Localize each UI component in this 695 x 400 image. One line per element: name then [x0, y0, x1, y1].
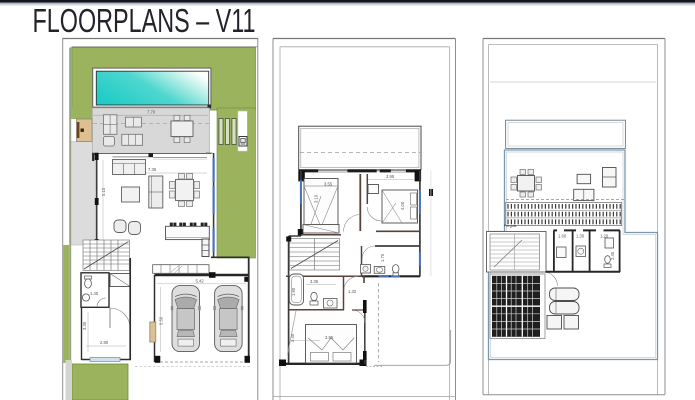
svg-text:3.95: 3.95: [325, 335, 334, 340]
svg-text:5.10: 5.10: [101, 187, 106, 196]
svg-text:3.55: 3.55: [324, 182, 333, 187]
svg-text:4.00: 4.00: [400, 201, 405, 210]
svg-text:Pergola: Pergola: [504, 224, 516, 228]
svg-text:5.42: 5.42: [196, 279, 205, 284]
svg-text:3.95: 3.95: [386, 174, 395, 179]
svg-text:1.90: 1.90: [291, 287, 296, 296]
svg-text:3.35: 3.35: [310, 279, 319, 284]
svg-text:3.30: 3.30: [82, 321, 87, 330]
svg-text:3.10: 3.10: [314, 194, 319, 203]
svg-text:2.80: 2.80: [100, 340, 109, 345]
svg-text:FLOORPLANS – V11: FLOORPLANS – V11: [33, 2, 256, 39]
svg-text:1.75: 1.75: [380, 253, 385, 262]
svg-text:7.35: 7.35: [148, 167, 157, 172]
svg-text:1.40: 1.40: [90, 291, 99, 296]
svg-text:5.50: 5.50: [159, 316, 164, 325]
svg-text:7.70: 7.70: [147, 110, 156, 115]
svg-text:2.45: 2.45: [610, 251, 615, 260]
svg-text:1.30: 1.30: [576, 234, 585, 239]
svg-text:1.32: 1.32: [348, 289, 357, 294]
svg-text:1.60: 1.60: [558, 234, 567, 239]
svg-text:3.40: 3.40: [290, 333, 295, 342]
